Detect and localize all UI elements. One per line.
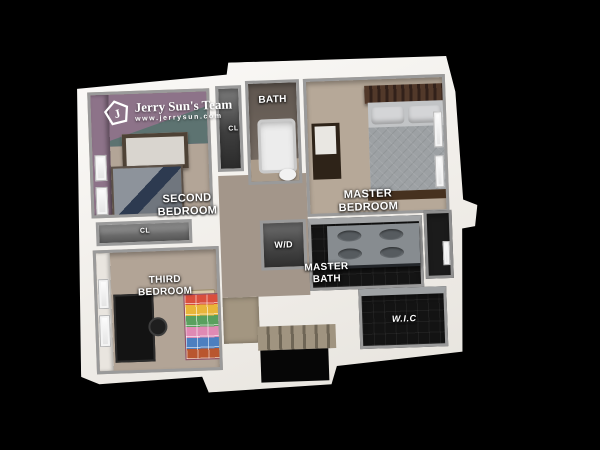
label-third-bedroom: THIRD BEDROOM (137, 274, 192, 299)
staircase (257, 324, 336, 351)
floorplan-screenshot: J Jerry Sun's Team www.jerrysun.com (0, 0, 600, 450)
stairwell-opening (260, 348, 329, 382)
pillow (371, 106, 405, 124)
logo-text-block: Jerry Sun's Team www.jerrysun.com (135, 97, 233, 122)
label-master-bedroom: MASTER BEDROOM (338, 187, 398, 214)
desk-chair (148, 317, 168, 337)
third-bedroom-left-wall (96, 253, 114, 371)
sink (380, 247, 404, 259)
window (435, 155, 445, 187)
window (98, 279, 110, 309)
label-second-bedroom: SECOND BEDROOM (157, 191, 217, 218)
label-master-bath: MASTER BATH (304, 261, 349, 286)
logo-monogram: J (113, 106, 122, 121)
room-toilet-closet (424, 210, 454, 279)
house-pentagon-icon: J (103, 99, 130, 126)
label-closet-bath: CL (228, 125, 239, 133)
label-bath: BATH (258, 94, 287, 106)
window (433, 111, 443, 147)
room-third-bedroom (93, 246, 223, 374)
stair-landing (222, 297, 260, 344)
window (96, 187, 109, 215)
label-laundry: W/D (274, 239, 293, 250)
dresser (311, 123, 341, 180)
floorplan: J Jerry Sun's Team www.jerrysun.com (66, 49, 488, 405)
team-name: Jerry Sun's Team (135, 97, 233, 113)
label-closet-hall: CL (140, 227, 151, 235)
sink (379, 229, 403, 241)
window (443, 241, 451, 265)
team-logo: J Jerry Sun's Team www.jerrysun.com (103, 95, 232, 125)
bathtub (257, 118, 297, 173)
sink (337, 230, 361, 242)
label-walk-in-closet: W.I.C (392, 313, 417, 324)
patchwork-quilt-bed (183, 293, 221, 360)
double-vanity (327, 223, 420, 266)
window (99, 315, 111, 347)
sink (338, 248, 362, 260)
window (94, 155, 107, 181)
dresser-top (315, 126, 337, 155)
